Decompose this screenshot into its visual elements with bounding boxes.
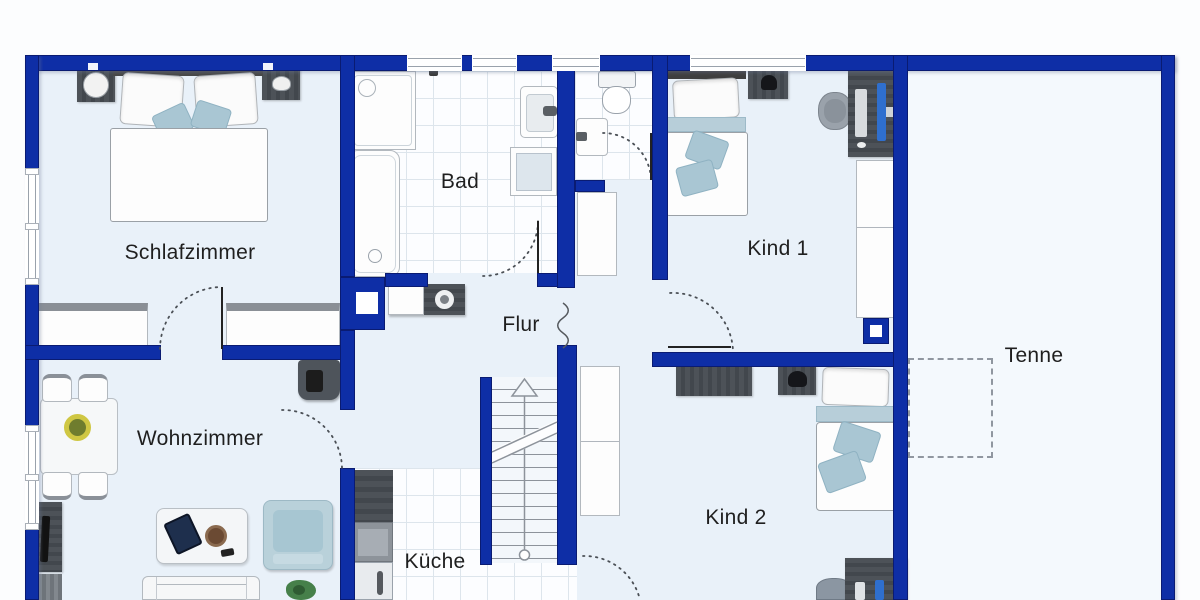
window [25, 425, 39, 530]
tablet [163, 513, 203, 556]
wall-kind1-kind2 [652, 352, 905, 367]
tenne-dashed-area [908, 358, 993, 458]
armchair [263, 500, 333, 570]
tv [40, 516, 50, 562]
room-label-kind1: Kind 1 [747, 237, 808, 261]
room-label-schlafzimmer: Schlafzimmer [125, 241, 256, 265]
nightstand-kind2 [778, 366, 816, 395]
room-label-wohnzimmer: Wohnzimmer [137, 427, 263, 451]
wall-stair-right [557, 345, 577, 565]
chair [78, 374, 108, 402]
kitchen-counter [352, 522, 393, 562]
wall-stair-left [480, 377, 492, 565]
wall-wc-bottom [575, 180, 605, 192]
wall-bad-bottom [385, 273, 428, 287]
nightstand-kind1 [748, 70, 788, 99]
wall-right [1161, 55, 1175, 600]
window [25, 168, 39, 285]
window [407, 55, 462, 71]
desk-chair-kind1 [818, 92, 852, 130]
lamp [761, 75, 777, 90]
fruit-bowl [64, 414, 91, 441]
room-label-kind2: Kind 2 [705, 506, 766, 530]
desk-kind1 [848, 71, 898, 157]
wall-pillar [340, 277, 385, 330]
oven-handle [377, 571, 383, 595]
table-lamp [83, 72, 109, 98]
toilet [598, 71, 636, 115]
room-tenne [908, 71, 1161, 600]
wall-tenne [893, 55, 908, 600]
wall-center-vertical [340, 330, 355, 410]
lamp [788, 371, 807, 387]
dining-table [40, 398, 118, 475]
hall-dresser [388, 284, 465, 315]
monitor [875, 580, 884, 600]
kitchen-oven [352, 562, 393, 600]
single-bed-kind1 [666, 71, 746, 214]
wall-center-vertical [340, 55, 355, 277]
sofa [142, 576, 260, 600]
plant [286, 580, 316, 600]
window [552, 55, 600, 71]
chair [42, 374, 72, 402]
pillar-kind1 [863, 318, 889, 344]
sink-tap [543, 106, 557, 116]
wall-wc-right [652, 55, 668, 280]
wardrobe-kind2 [580, 366, 620, 516]
room-label-flur: Flur [502, 313, 539, 337]
chair [78, 472, 108, 500]
wall-schlafzimmer-bottom [25, 345, 161, 360]
room-label-kueche: Küche [404, 550, 465, 574]
tub-drain [368, 249, 382, 263]
bowl [205, 525, 227, 547]
room-label-tenne: Tenne [1005, 344, 1064, 368]
lamp [272, 76, 291, 91]
sideboard [38, 303, 148, 348]
single-bed-kind2 [816, 364, 895, 509]
wall-schlafzimmer-bottom [222, 345, 354, 360]
bathtub [348, 150, 400, 277]
wc-tap [576, 132, 587, 141]
mouse [857, 142, 866, 148]
shower [350, 71, 416, 150]
basin [435, 290, 454, 309]
remote [220, 548, 234, 557]
wc-sink [576, 118, 608, 156]
stove [298, 360, 340, 400]
wall-top [25, 55, 1175, 71]
sideboard [226, 303, 340, 348]
double-bed [113, 66, 263, 221]
wall-wohnzimmer-kueche [340, 468, 355, 600]
wall-bad-wc [557, 55, 575, 288]
keyboard [855, 582, 865, 600]
room-label-bad: Bad [441, 170, 479, 194]
monitor [877, 83, 886, 141]
kitchen-fridge [352, 470, 393, 522]
nightstand-left [77, 68, 115, 102]
floor-plan: Schlafzimmer Bad Flur Kind 1 Tenne Wohnz… [0, 0, 1200, 600]
wall-joint [88, 63, 98, 70]
window [472, 55, 517, 71]
coffee-table [156, 508, 248, 564]
keyboard [855, 89, 867, 137]
washing-machine [510, 147, 557, 196]
hall-closet [577, 192, 617, 276]
staircase [492, 377, 557, 563]
sideboard-kind2 [676, 366, 752, 396]
nightstand-right [262, 68, 300, 100]
wall-joint [263, 63, 273, 70]
window [690, 55, 806, 71]
shower-drain [358, 79, 376, 97]
chair [42, 472, 72, 500]
bathroom-sink [520, 86, 558, 138]
